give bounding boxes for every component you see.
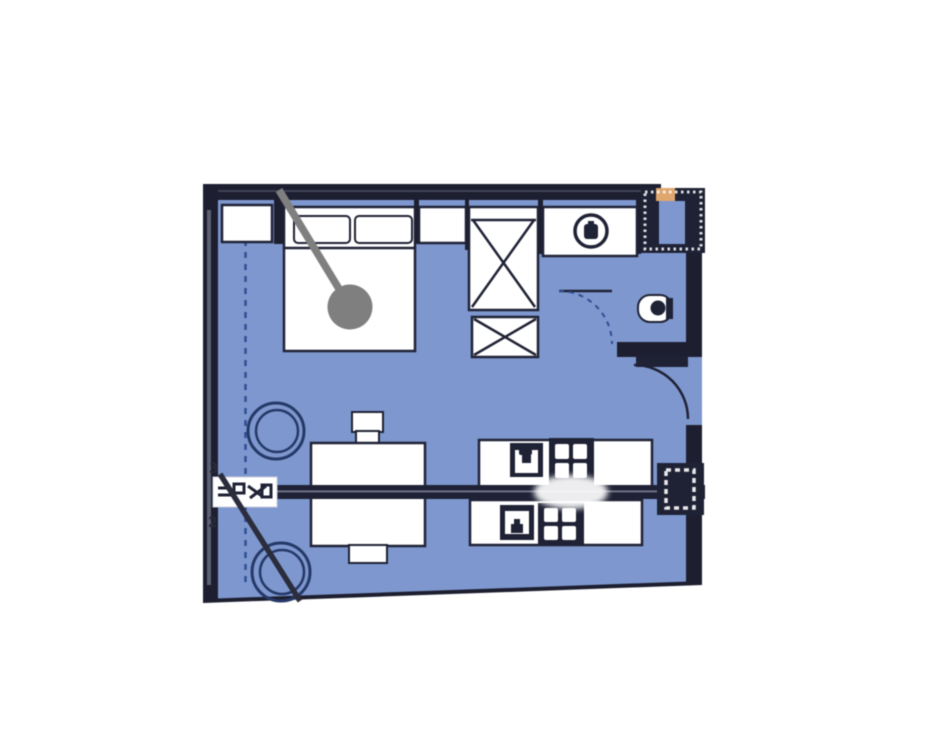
pillow-icon bbox=[355, 216, 412, 243]
grid-label-upper: 3 bbox=[209, 461, 219, 477]
nightstand-icon bbox=[222, 205, 272, 242]
stool-icon bbox=[349, 545, 387, 563]
section-cut-line bbox=[211, 485, 705, 499]
sink-icon bbox=[510, 443, 543, 477]
section-marker-right bbox=[657, 463, 704, 515]
stove-burners-icon bbox=[538, 503, 584, 546]
sink-icon bbox=[500, 505, 534, 540]
closet-shelf bbox=[419, 207, 466, 243]
washing-machine-icon bbox=[543, 207, 637, 256]
ventilation-shaft-icon bbox=[641, 188, 705, 253]
stool-icon bbox=[352, 412, 383, 443]
grid-label-lower: 2 bbox=[208, 515, 218, 531]
floor-plan: 3 2 bbox=[0, 0, 935, 735]
floor-plan-page: 3 2 bbox=[0, 0, 935, 735]
shaft-x-box-icon bbox=[472, 317, 538, 357]
toilet-icon bbox=[638, 295, 673, 322]
wardrobe-icon bbox=[469, 207, 538, 310]
smudge bbox=[534, 475, 608, 509]
